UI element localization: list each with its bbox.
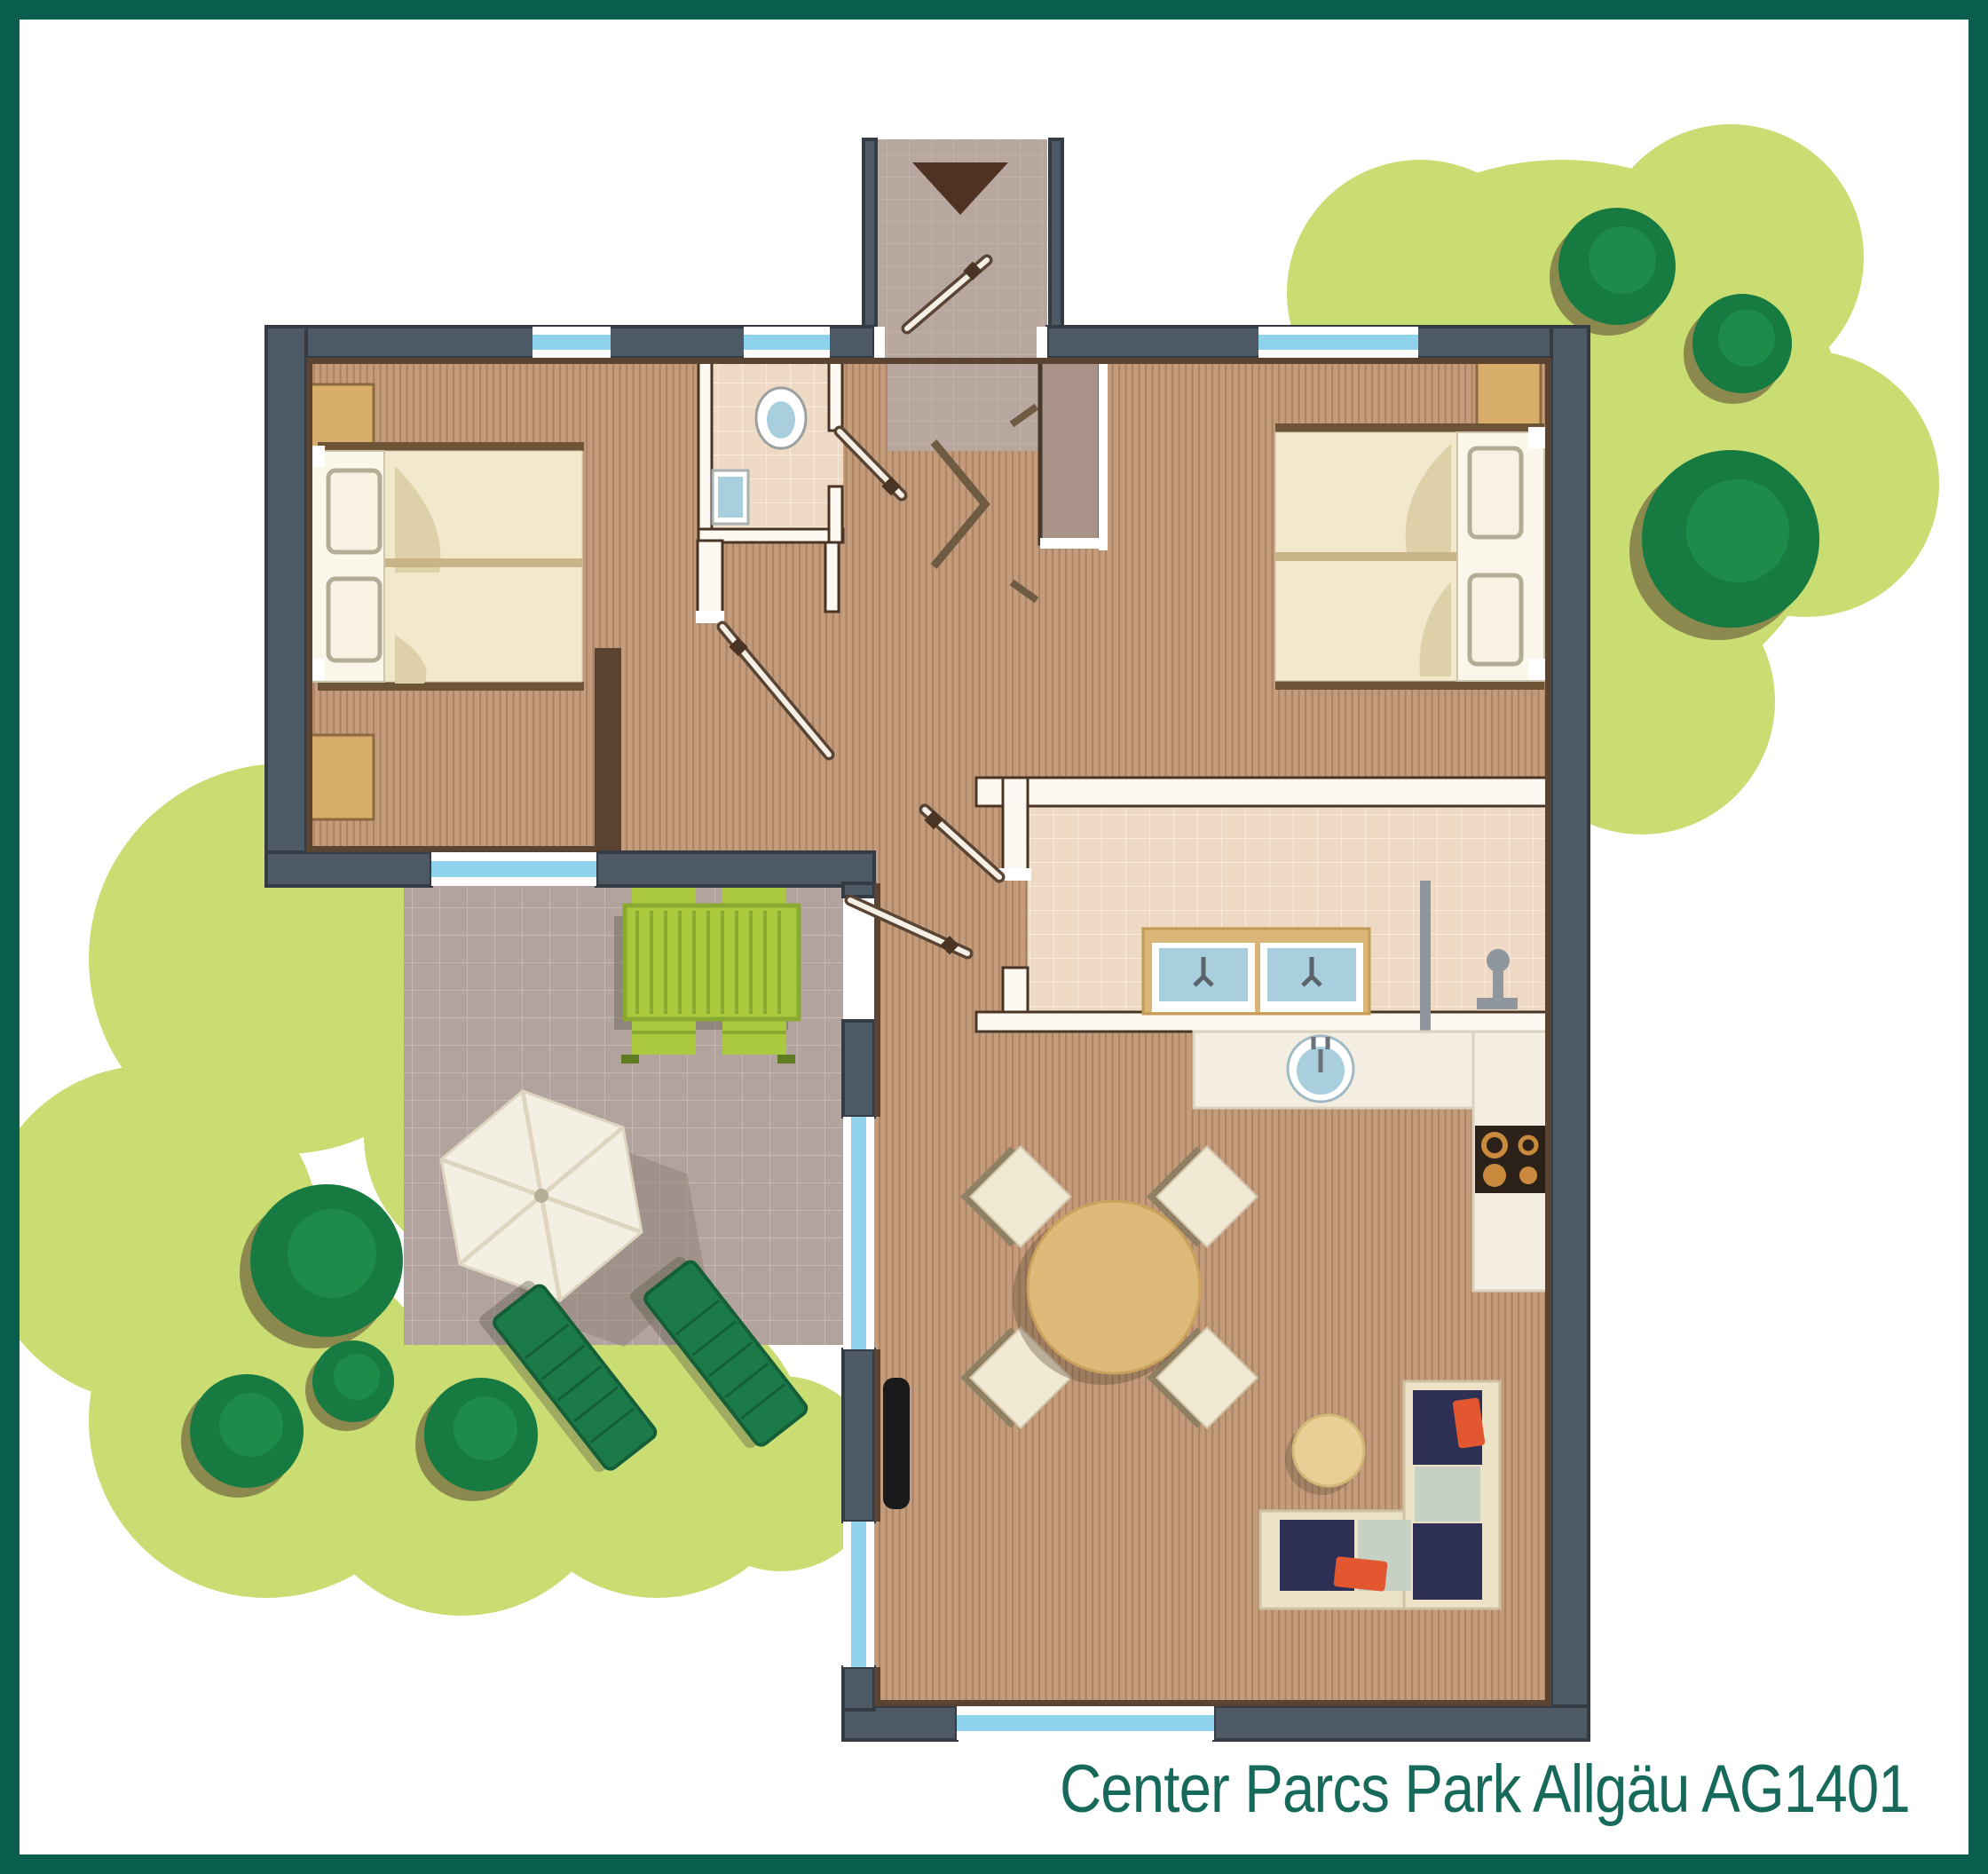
tv-icon: [883, 1378, 910, 1509]
entry-mat: [887, 358, 1038, 451]
washbasin: [1260, 943, 1363, 1012]
floorplan-drawing: [0, 0, 1988, 1874]
pillow: [1470, 448, 1521, 537]
window: [532, 327, 611, 358]
plan-title: Center Parcs Park Allgäu AG1401: [1060, 1751, 1910, 1828]
window: [843, 1522, 874, 1667]
shower-screen: [1420, 881, 1431, 1033]
floorplan-page: Center Parcs Park Allgäu AG1401: [0, 0, 1988, 1874]
window: [957, 1706, 1214, 1740]
kitchen-sink-icon: [1288, 1036, 1353, 1102]
nightstand: [307, 384, 374, 449]
double-bed: [1275, 423, 1551, 690]
nightstand: [1477, 362, 1541, 428]
stove-icon: [1475, 1126, 1550, 1193]
washbasin: [1152, 943, 1255, 1012]
window: [843, 1117, 874, 1349]
entrance-path: [864, 139, 1062, 361]
sofa-cushion: [1333, 1556, 1387, 1592]
window: [1258, 327, 1418, 358]
nightstand: [307, 735, 374, 819]
window: [744, 327, 830, 358]
double-bed: [302, 442, 584, 691]
window: [431, 852, 596, 886]
pillow: [328, 470, 380, 552]
dining-table: [1028, 1201, 1200, 1373]
pillow: [328, 579, 380, 660]
pillow: [1470, 575, 1521, 664]
